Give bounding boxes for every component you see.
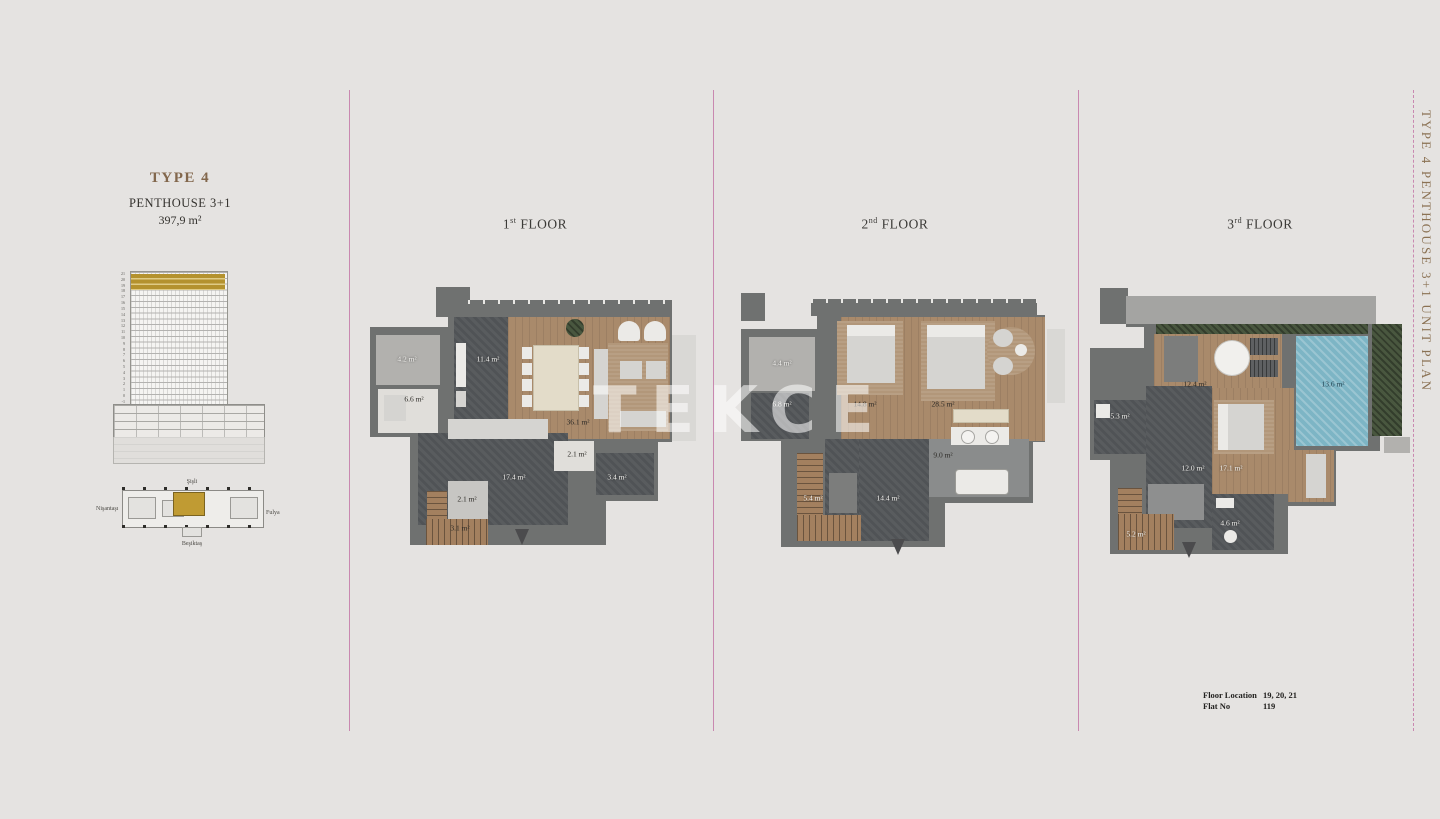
sink (985, 430, 999, 444)
flat-no-row: Flat No 119 (1203, 701, 1297, 712)
area-label: 4.6 m² (1220, 519, 1239, 528)
double-sink-unit (951, 427, 1009, 445)
armchair (644, 321, 666, 341)
umbrella-icon (1214, 340, 1250, 376)
elevation-podium (113, 404, 265, 439)
wall-chimney (436, 287, 470, 317)
ac-unit (1384, 437, 1410, 453)
side-table (1015, 344, 1027, 356)
vanity-counter (953, 409, 1009, 423)
floor-number: 0 (109, 394, 125, 398)
bed-pillows (847, 325, 895, 336)
site-label-east: Fulya (266, 510, 280, 516)
area-label: 9.0 m² (933, 451, 952, 460)
floor-number: 16 (109, 301, 125, 305)
stairs-flight-horizontal (797, 515, 861, 541)
floor-number: 8 (109, 348, 125, 352)
area-label: 3.1 m² (450, 524, 469, 533)
sun-lounger (1250, 360, 1278, 377)
wall-top-band (811, 299, 1037, 316)
dining-chair (579, 379, 589, 391)
stairs-flight-vertical (797, 453, 823, 515)
floor-number: 11 (109, 330, 125, 334)
floor-3-ord: rd (1234, 216, 1242, 225)
floor-2-word: FLOOR (882, 217, 929, 232)
sink (1216, 498, 1234, 508)
dining-chair (522, 363, 532, 375)
elevation-highlight-floors (131, 274, 225, 290)
entrance-arrow-icon (1182, 542, 1196, 558)
floor-number: 7 (109, 353, 125, 357)
site-label-south: Beşiktaş (112, 541, 272, 547)
floor-number: 1 (109, 388, 125, 392)
bench (1306, 454, 1326, 498)
room-hall (859, 439, 929, 541)
floor-1-ord: st (510, 216, 516, 225)
site-label-north: Şişli (112, 479, 272, 485)
floor-number: 18 (109, 289, 125, 293)
elevation-foundation (113, 437, 265, 464)
side-terrace (1047, 329, 1065, 403)
floor-number: 17 (109, 295, 125, 299)
entrance-arrow-icon (515, 529, 529, 545)
roof-slab (1126, 296, 1376, 327)
area-label: 4.4 m² (772, 359, 791, 368)
floor-plan-3: 12.4 m² 13.6 m² 5.3 m² 12.0 m² 17.1 m² 4… (1090, 288, 1415, 565)
floor-number: 14 (109, 313, 125, 317)
floor-location-row: Floor Location 19, 20, 21 (1203, 690, 1297, 701)
window-mullions (811, 299, 1037, 303)
dining-chair (522, 347, 532, 359)
site-key-plan: Şişli Nişantaşı Fulya Beşiktaş (112, 476, 272, 554)
floor-number: 12 (109, 324, 125, 328)
floor-title-3: 3rd FLOOR (1175, 216, 1345, 233)
floor-number: 20 (109, 278, 125, 282)
sink (961, 430, 975, 444)
floor-number: 19 (109, 284, 125, 288)
unit-type-title: TYPE 4 (99, 170, 261, 187)
site-wing-right (230, 497, 258, 519)
site-highlighted-unit (173, 492, 205, 516)
stairs-flight-vertical (1118, 488, 1142, 516)
floor-number: 4 (109, 371, 125, 375)
room-pool (1296, 336, 1368, 446)
kitchen-counter (456, 343, 466, 387)
floor-number: 15 (109, 307, 125, 311)
floor-number: 21 (109, 272, 125, 276)
armchair (618, 321, 640, 341)
unit-total-area: 397,9 m² (99, 213, 261, 228)
area-label: 36.1 m² (566, 418, 589, 427)
wall-chimney (741, 293, 765, 321)
site-stub (182, 527, 202, 537)
side-planter (1372, 324, 1402, 436)
floor-location-label: Floor Location (1203, 690, 1263, 701)
divider-line-1 (349, 90, 350, 731)
area-label: 17.1 m² (1219, 464, 1242, 473)
dining-table (533, 345, 579, 411)
floor-number: 10 (109, 336, 125, 340)
hedge-planter (1156, 324, 1368, 334)
stairs-flight-vertical (427, 491, 447, 521)
area-label: 5.2 m² (1126, 530, 1145, 539)
window-mullions (468, 300, 672, 304)
lounge-chair (993, 329, 1013, 347)
unit-name: PENTHOUSE 3+1 (99, 196, 261, 211)
washer (1096, 404, 1110, 418)
area-label: 13.6 m² (1321, 380, 1344, 389)
footer-info: Floor Location 19, 20, 21 Flat No 119 (1203, 690, 1297, 712)
floor-number: 3 (109, 377, 125, 381)
bed-pillows (927, 325, 985, 337)
plant-icon (566, 319, 584, 337)
floor-number: 5 (109, 365, 125, 369)
building-elevation: 2120191817161514131211109876543210-1 (105, 266, 273, 471)
area-label: 11.4 m² (477, 355, 500, 364)
floor-2-ord: nd (869, 216, 878, 225)
floor-1-word: FLOOR (520, 217, 567, 232)
area-label: 5.3 m² (1110, 412, 1129, 421)
area-label: 17.4 m² (502, 473, 525, 482)
entrance-arrow-icon (891, 539, 905, 555)
watermark-logo: TEKCE (593, 382, 893, 442)
elevation-tower (130, 271, 228, 406)
dining-chair (579, 395, 589, 407)
dining-chair (579, 363, 589, 375)
area-label: 12.0 m² (1181, 464, 1204, 473)
site-label-west: Nişantaşı (96, 506, 118, 512)
divider-line-3 (1078, 90, 1079, 731)
elevation-floor-numbers: 2120191817161514131211109876543210-1 (109, 272, 125, 404)
sun-lounger (1250, 338, 1278, 355)
outdoor-sofa (1164, 336, 1198, 382)
bathtub (955, 469, 1009, 495)
dining-chair (522, 379, 532, 391)
area-label: 14.4 m² (876, 494, 899, 503)
floor-location-value: 19, 20, 21 (1263, 690, 1297, 701)
area-label: 4.2 m² (397, 355, 416, 364)
floor-title-2: 2nd FLOOR (810, 216, 980, 233)
side-vertical-label: TYPE 4 PENTHOUSE 3+1 UNIT PLAN (1418, 110, 1434, 392)
floor-3-word: FLOOR (1246, 217, 1293, 232)
floor-number: 6 (109, 359, 125, 363)
area-label: 6.6 m² (404, 395, 423, 404)
flat-no-value: 119 (1263, 701, 1275, 712)
floor-number: 9 (109, 342, 125, 346)
wardrobe-unit (829, 473, 857, 513)
flat-no-label: Flat No (1203, 701, 1263, 712)
lounge-chair (993, 357, 1013, 375)
sofa-long (448, 419, 548, 439)
site-wing-left (128, 497, 156, 519)
area-label: 2.1 m² (567, 450, 586, 459)
bed-pillows (1218, 404, 1228, 450)
floor-number: 13 (109, 319, 125, 323)
area-label: 3.4 m² (607, 473, 626, 482)
dining-chair (522, 395, 532, 407)
area-label: 5.4 m² (803, 494, 822, 503)
area-label: 2.1 m² (457, 495, 476, 504)
study-desk (384, 395, 406, 421)
toilet (1224, 530, 1237, 543)
dining-chair (579, 347, 589, 359)
wall-chimney (1100, 288, 1128, 324)
unit-header: TYPE 4 PENTHOUSE 3+1 397,9 m² (99, 170, 261, 228)
area-label: 28.5 m² (931, 400, 954, 409)
floor-2-num: 2 (862, 217, 869, 232)
area-label: 12.4 m² (1183, 380, 1206, 389)
floor-title-1: 1st FLOOR (450, 216, 620, 233)
kitchen-fridge (456, 391, 466, 407)
floor-number: 2 (109, 382, 125, 386)
